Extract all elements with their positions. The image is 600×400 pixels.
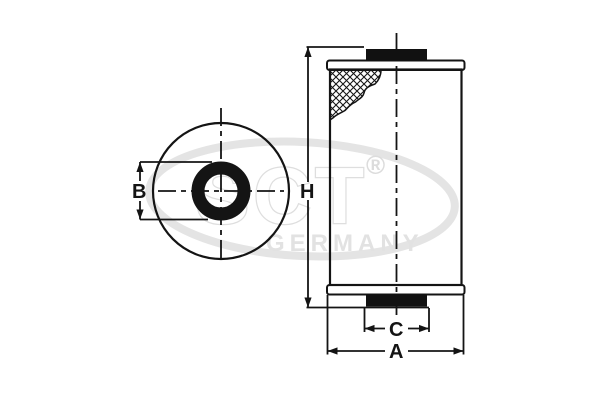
dim-h-arrow-down-icon xyxy=(304,298,311,308)
drawing-canvas: SCT ® GERMANY B xyxy=(0,0,600,400)
dim-a-arrow-left-icon xyxy=(328,347,338,354)
dim-label-b: B xyxy=(132,181,146,203)
dim-h-arrow-up-icon xyxy=(304,47,311,57)
watermark-registered-icon: ® xyxy=(366,150,385,180)
dim-b-arrow-down-icon xyxy=(136,210,143,220)
dim-label-h: H xyxy=(300,181,314,203)
dim-c-arrow-right-icon xyxy=(419,325,429,332)
filter-technical-drawing: SCT ® GERMANY B xyxy=(0,0,600,400)
bottom-seal xyxy=(366,295,427,307)
dim-a-arrow-right-icon xyxy=(454,347,464,354)
dim-b-arrow-up-icon xyxy=(136,162,143,172)
dim-c-arrow-left-icon xyxy=(365,325,375,332)
dim-label-c: C xyxy=(389,319,403,341)
top-seal xyxy=(366,49,427,61)
dim-label-a: A xyxy=(389,341,403,363)
watermark-country-text: GERMANY xyxy=(266,230,424,257)
cutaway-hatch-section xyxy=(330,70,381,120)
